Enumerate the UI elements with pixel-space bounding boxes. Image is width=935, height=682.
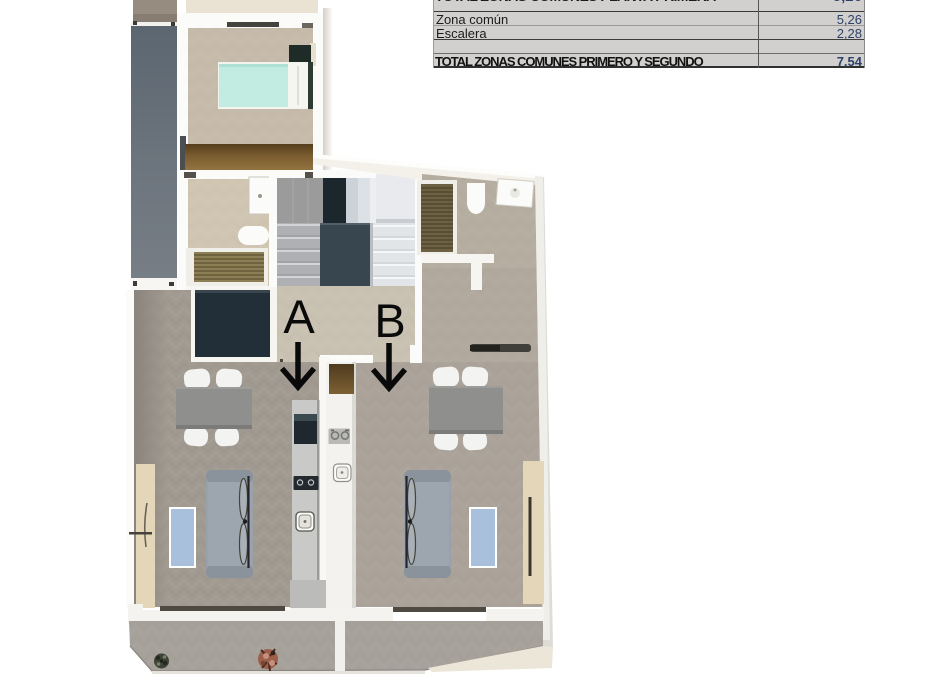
svg-text:A: A xyxy=(283,290,315,343)
svg-text:B: B xyxy=(374,294,405,347)
